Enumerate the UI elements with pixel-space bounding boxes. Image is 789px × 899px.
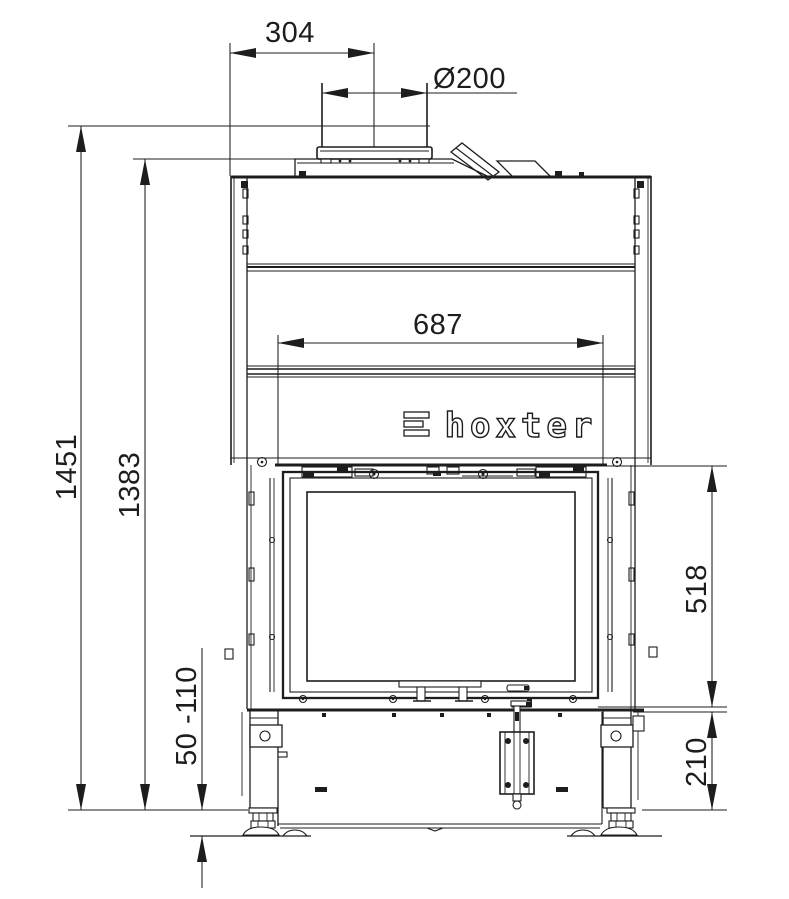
rear-foot-right xyxy=(571,830,595,836)
hoxter-logo-text: hoxter xyxy=(445,406,598,446)
body-seam-lower xyxy=(247,366,635,377)
rear-foot-left xyxy=(283,830,307,836)
door-frame xyxy=(283,472,598,698)
technical-drawing: hoxter xyxy=(0,0,789,899)
door-glass xyxy=(307,492,575,681)
center-latch-mechanism xyxy=(500,701,534,809)
hoxter-logo: hoxter xyxy=(404,406,597,446)
dim-leg-adjustment-label: 50 -110 xyxy=(171,666,203,766)
flue-top-plate xyxy=(295,159,584,177)
dim-body-height: 1383 xyxy=(114,159,296,810)
dim-opening-width-label: 687 xyxy=(413,309,463,341)
dim-body-height-label: 1383 xyxy=(114,452,146,519)
dim-total-height-label: 1451 xyxy=(51,434,83,501)
adjustable-foot-right xyxy=(601,808,637,835)
left-leg-bracket xyxy=(250,725,282,747)
fire-door xyxy=(270,472,613,707)
dim-total-height: 1451 xyxy=(51,126,430,810)
dim-door-height: 518 xyxy=(598,466,727,707)
flue-collar xyxy=(317,147,432,163)
damper-duct xyxy=(451,143,551,180)
fireplace-front-view: hoxter xyxy=(190,83,662,836)
dim-base-height: 210 xyxy=(633,712,727,810)
dim-flue-offset-label: 304 xyxy=(265,17,315,49)
dim-flue-diameter: Ø200 xyxy=(322,63,517,98)
dim-flue-diameter-label: Ø200 xyxy=(433,63,506,95)
dim-base-height-label: 210 xyxy=(681,737,713,787)
hoxter-logo-mark-icon xyxy=(404,412,429,436)
right-leg-bracket xyxy=(601,725,633,747)
base-assembly xyxy=(190,701,662,836)
dim-door-height-label: 518 xyxy=(681,564,713,614)
adjustable-foot-left xyxy=(243,808,279,835)
base-panel xyxy=(278,712,602,831)
right-leg xyxy=(601,710,644,808)
body-seam-upper xyxy=(247,264,635,271)
dim-leg-adjustment: 50 -110 xyxy=(171,648,207,888)
